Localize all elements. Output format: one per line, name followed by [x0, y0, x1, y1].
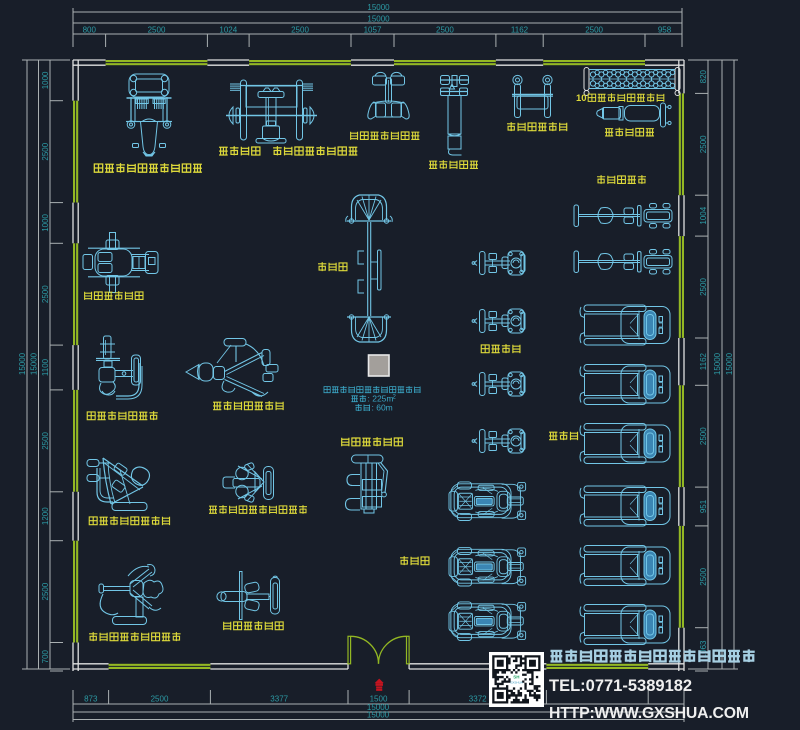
svg-text:3372: 3372 — [469, 695, 487, 704]
svg-text:820: 820 — [699, 69, 708, 83]
svg-text:2500: 2500 — [699, 135, 708, 153]
svg-text:2500: 2500 — [41, 142, 50, 160]
svg-text:1100: 1100 — [41, 358, 50, 376]
svg-text:2500: 2500 — [148, 26, 166, 35]
svg-text:2500: 2500 — [151, 695, 169, 704]
svg-text:1057: 1057 — [364, 26, 382, 35]
svg-text:2500: 2500 — [699, 427, 708, 445]
svg-text:: 60m: : 60m — [372, 403, 393, 413]
svg-text:1004: 1004 — [699, 206, 708, 224]
svg-text:3377: 3377 — [270, 695, 288, 704]
svg-text:873: 873 — [84, 695, 98, 704]
svg-text:GXSHUA: GXSHUA — [510, 681, 523, 685]
svg-text:1000: 1000 — [41, 213, 50, 231]
svg-text:2500: 2500 — [291, 26, 309, 35]
svg-text:800: 800 — [83, 26, 97, 35]
svg-text:700: 700 — [41, 649, 50, 663]
svg-text:15000: 15000 — [18, 352, 27, 375]
svg-text:1162: 1162 — [511, 26, 529, 35]
svg-text:15000: 15000 — [725, 352, 734, 375]
svg-text:15000: 15000 — [30, 352, 39, 375]
svg-text:1024: 1024 — [219, 26, 237, 35]
svg-text:15000: 15000 — [367, 3, 390, 12]
svg-text:15000: 15000 — [367, 15, 390, 24]
svg-text:951: 951 — [699, 499, 708, 513]
svg-text:958: 958 — [658, 26, 672, 35]
svg-text:2500: 2500 — [699, 278, 708, 296]
svg-text:10: 10 — [576, 93, 587, 104]
svg-text:2500: 2500 — [41, 431, 50, 449]
svg-text:1162: 1162 — [699, 352, 708, 370]
svg-text:2500: 2500 — [699, 567, 708, 585]
svg-text:15000: 15000 — [713, 352, 722, 375]
svg-text:2500: 2500 — [41, 582, 50, 600]
svg-text:2500: 2500 — [585, 26, 603, 35]
svg-text:TEL:0771-5389182: TEL:0771-5389182 — [549, 677, 692, 695]
svg-text:HTTP:WWW.GXSHUA.COM: HTTP:WWW.GXSHUA.COM — [549, 705, 749, 722]
svg-text:2500: 2500 — [41, 285, 50, 303]
svg-text:SH: SH — [513, 675, 519, 680]
svg-text:1200: 1200 — [41, 507, 50, 525]
svg-text:1000: 1000 — [41, 71, 50, 89]
svg-text:2500: 2500 — [436, 26, 454, 35]
svg-text:15000: 15000 — [367, 711, 390, 720]
